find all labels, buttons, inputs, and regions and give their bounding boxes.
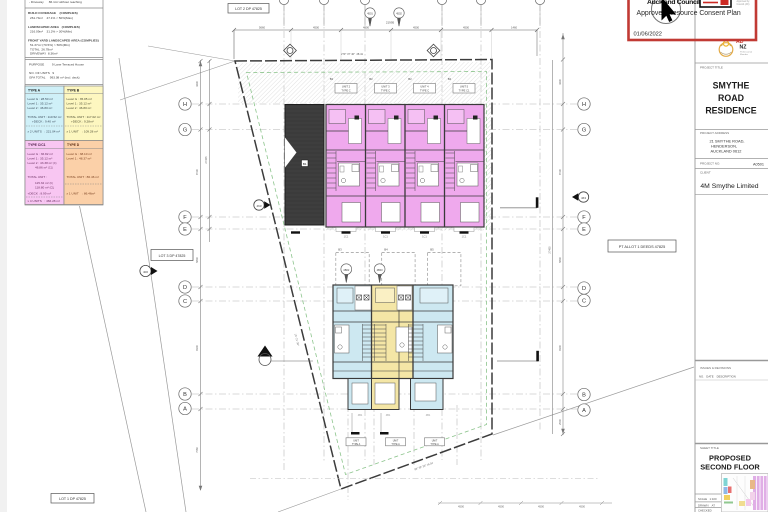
svg-text:TOTAL UNIT :: TOTAL UNIT : (28, 175, 47, 179)
svg-text:273° 37' 40" 28.41: 273° 37' 40" 28.41 (341, 52, 363, 56)
svg-text:4B1: 4B1 (426, 413, 431, 417)
svg-text:PURPOSE 9 Lane Terrace: PURPOSE 9 Lane Terraced House (29, 63, 84, 67)
svg-text:1C1: 1C1 (422, 235, 427, 239)
svg-text:x 2 UNITS : 221.04 m²: x 2 UNITS : 221.04 m² (28, 130, 61, 134)
svg-text:TOTAL UNIT : 117.02 m²: TOTAL UNIT : 117.02 m² (67, 115, 101, 119)
svg-text:4500: 4500 (458, 505, 464, 509)
svg-text:SCALE 1:100: SCALE 1:100 (698, 497, 717, 501)
svg-text:261.74m² 47.1% < 50%(Max): 261.74m² 47.1% < 50%(Max) (30, 16, 73, 20)
svg-text:E: E (183, 227, 187, 233)
svg-text:B: B (582, 393, 586, 399)
svg-text:TYPE C: TYPE C (381, 89, 390, 93)
svg-text:x 1 UNIT : 86.46m²: x 1 UNIT : 86.46m² (67, 192, 96, 196)
svg-text:4500: 4500 (463, 26, 469, 30)
svg-text:DRAWN AT: DRAWN AT (698, 503, 715, 507)
svg-text:463: 463 (256, 204, 261, 208)
svg-text:Level 1 : 35.12 m²: Level 1 : 35.12 m² (28, 157, 53, 161)
svg-text:Approved Resource Consent Plan: Approved Resource Consent Plan (637, 10, 741, 17)
svg-text:4502: 4502 (396, 12, 402, 16)
svg-text:TYPE C1: TYPE C1 (459, 89, 470, 93)
svg-text:PROJECT NO.: PROJECT NO. (700, 162, 720, 166)
svg-text:1C1: 1C1 (344, 235, 349, 239)
svg-text:5840: 5840 (195, 257, 199, 263)
svg-text:x 4 UNITS : 466.28 m²: x 4 UNITS : 466.28 m² (28, 199, 61, 203)
svg-text:F: F (183, 215, 187, 221)
svg-text:Level 2 : 43.38 m² (C): Level 2 : 43.38 m² (C) (28, 161, 57, 165)
svg-text:SHEET TITLE: SHEET TITLE (700, 446, 719, 450)
svg-text:DRIVEWAY 8.36m²: DRIVEWAY 8.36m² (30, 52, 58, 56)
svg-text:PROPOSED: PROPOSED (709, 454, 752, 463)
svg-text:B4: B4 (384, 248, 388, 252)
svg-text:01/06/2022: 01/06/2022 (634, 32, 662, 38)
svg-text:RESIDENCE: RESIDENCE (705, 106, 756, 116)
svg-text:NO. OF UNITS 9: NO. OF UNITS 9 (29, 71, 54, 75)
svg-text:AUCKLAND 0612: AUCKLAND 0612 (711, 149, 742, 154)
svg-text:CHECKED: CHECKED (698, 509, 712, 513)
svg-text:x 1 UNIT : 109.28 m²: x 1 UNIT : 109.28 m² (67, 130, 98, 134)
svg-text:4B1: 4B1 (386, 413, 391, 417)
svg-text:5840: 5840 (558, 257, 562, 263)
svg-text:UNIT 3: UNIT 3 (381, 85, 390, 89)
svg-text:4501: 4501 (367, 12, 373, 16)
svg-text:SMYTHE: SMYTHE (713, 81, 750, 91)
svg-text:PROJECT TITLE: PROJECT TITLE (700, 66, 723, 70)
svg-text:BUILD COVERAGE (COMPLIES): BUILD COVERAGE (COMPLIES) (28, 11, 78, 15)
svg-text:4B1: 4B1 (358, 413, 363, 417)
svg-text:NO. DATE DESCRIPTION: NO. DATE DESCRIPTION (699, 375, 736, 379)
svg-text:2500: 2500 (558, 419, 562, 425)
svg-text:118.80 m² (C1): 118.80 m² (C1) (35, 186, 54, 190)
svg-text:ROAD: ROAD (718, 93, 744, 103)
svg-text:TOTAL UNIT : 110.52 m²: TOTAL UNIT : 110.52 m² (28, 115, 62, 119)
svg-text:TYPE A: TYPE A (391, 443, 400, 446)
svg-text:B5: B5 (430, 248, 434, 252)
svg-text:46.86 m² (C1): 46.86 m² (C1) (35, 166, 53, 170)
svg-text:9300: 9300 (195, 345, 199, 351)
svg-text:Level 1 : 35.12 m²: Level 1 : 35.12 m² (67, 102, 92, 106)
svg-text:Approved by: Approved by (737, 0, 751, 3)
svg-text:Level 2 : 46.80 m²: Level 2 : 46.80 m² (67, 106, 92, 110)
svg-text:D: D (582, 286, 586, 292)
svg-text:1C1: 1C1 (383, 235, 388, 239)
svg-text:216.09m² 31.2% > 30%(Min): 216.09m² 31.2% > 30%(Min) (30, 29, 72, 33)
svg-text:TYPE C: TYPE C (341, 89, 350, 93)
svg-text:A0501: A0501 (753, 163, 764, 167)
svg-text:463: 463 (581, 196, 586, 200)
svg-text:400: 400 (143, 270, 148, 274)
svg-text:UNIT 2: UNIT 2 (342, 85, 351, 89)
svg-text:E: E (582, 227, 586, 233)
svg-text:LOT 2 DP 47825: LOT 2 DP 47825 (235, 7, 262, 11)
svg-text:A: A (582, 408, 586, 414)
svg-text:Level G : 28.50 m²: Level G : 28.50 m² (28, 97, 53, 101)
svg-text:21995: 21995 (386, 21, 395, 25)
svg-text:SECOND FLOOR: SECOND FLOOR (700, 463, 760, 472)
svg-text:B2: B2 (408, 77, 412, 81)
svg-text:4500: 4500 (413, 26, 419, 30)
svg-text:TYPE D: TYPE D (67, 143, 80, 147)
svg-text:4B03: 4B03 (377, 268, 384, 272)
svg-text:+DECK : 9.40 m²: +DECK : 9.40 m² (32, 120, 55, 124)
svg-text:Level G : 35.05 m²: Level G : 35.05 m² (67, 97, 92, 101)
svg-text:1C1: 1C1 (462, 235, 467, 239)
svg-text:8730: 8730 (558, 169, 562, 175)
svg-text:NZ: NZ (740, 45, 748, 51)
svg-text:TYPE C/C1: TYPE C/C1 (28, 143, 46, 147)
svg-text:TYPE A: TYPE A (28, 89, 41, 93)
svg-text:Level 1 : 35.12 m²: Level 1 : 35.12 m² (28, 102, 53, 106)
svg-text:G: G (582, 128, 586, 134)
svg-text:F: F (582, 215, 586, 221)
svg-text:G: G (183, 128, 187, 134)
svg-text:LOT 3 DP 47825: LOT 3 DP 47825 (159, 254, 186, 258)
svg-text:C: C (582, 299, 586, 305)
svg-text:4500: 4500 (498, 505, 504, 509)
svg-text:B3: B3 (338, 248, 342, 252)
svg-text:4B02: 4B02 (343, 268, 350, 272)
svg-text:B2: B2 (369, 77, 373, 81)
svg-text:+DECK : 9.28m²: +DECK : 9.28m² (71, 120, 94, 124)
svg-text:4430: 4430 (195, 81, 199, 87)
svg-text:Level 1 : 48.37 m²: Level 1 : 48.37 m² (67, 157, 92, 161)
svg-text:Auckland Council: Auckland Council (647, 0, 700, 6)
svg-text:CLIENT: CLIENT (700, 171, 711, 175)
svg-text:4430: 4430 (558, 79, 562, 85)
svg-text:PROJECT ADDRESS: PROJECT ADDRESS (700, 131, 729, 135)
svg-text:TYPE C: TYPE C (420, 89, 429, 93)
svg-text:LOT 1 DP 47825: LOT 1 DP 47825 (59, 497, 86, 501)
svg-text:4500: 4500 (363, 26, 369, 30)
svg-text:PT ALLOT 1 DEEDS 47825: PT ALLOT 1 DEEDS 47825 (619, 245, 666, 249)
svg-text:4M Smythe Limited: 4M Smythe Limited (700, 183, 758, 190)
svg-text:7560: 7560 (195, 447, 199, 453)
svg-text:ISSUES & REVISIONS: ISSUES & REVISIONS (700, 366, 731, 370)
svg-text:TYPE A: TYPE A (352, 443, 361, 446)
svg-text:Professional: Professional (740, 51, 753, 54)
svg-text:27405: 27405 (548, 246, 552, 254)
svg-text:H: H (582, 102, 586, 108)
svg-text:4500: 4500 (579, 505, 585, 509)
svg-text:Member: Member (740, 53, 748, 56)
svg-text:GFA TOTAL 993.08 m² (incl.: GFA TOTAL 993.08 m² (incl. deck) (29, 76, 80, 80)
svg-text:27405: 27405 (204, 156, 208, 164)
svg-text:TYPE A: TYPE A (430, 443, 439, 446)
svg-text:+DECK : 8.99 m²: +DECK : 8.99 m² (28, 192, 51, 196)
svg-text:B2: B2 (448, 77, 452, 81)
svg-text:9300: 9300 (558, 345, 562, 351)
svg-text:5660: 5660 (259, 26, 265, 30)
svg-text:TOTAL UNIT : 86.46 m²: TOTAL UNIT : 86.46 m² (67, 175, 99, 179)
svg-text:UNIT 4: UNIT 4 (420, 85, 429, 89)
svg-text:Council (AK): Council (AK) (737, 3, 750, 6)
svg-text:LANDSCAPED AREA (COMPLIES): LANDSCAPED AREA (COMPLIES) (28, 25, 80, 29)
svg-text:4500: 4500 (313, 26, 319, 30)
svg-text:115.32 m² (C): 115.32 m² (C) (35, 181, 53, 185)
svg-text:1460: 1460 (511, 26, 517, 30)
svg-text:4500: 4500 (538, 505, 544, 509)
svg-text:TYPE B: TYPE B (67, 89, 80, 93)
svg-text:C: C (183, 299, 187, 305)
svg-text:FRONT YARD LANDSCAPED AREA (CO: FRONT YARD LANDSCAPED AREA (COMPLIES) (28, 38, 99, 42)
svg-text:H: H (183, 102, 187, 108)
svg-text:Level 2 : 46.80 m²: Level 2 : 46.80 m² (28, 106, 53, 110)
svg-text:Level G : 38.10 m²: Level G : 38.10 m² (67, 152, 92, 156)
svg-text:D: D (183, 285, 187, 291)
svg-text:A: A (183, 407, 187, 413)
svg-text:B: B (183, 392, 187, 398)
svg-text:B2: B2 (330, 77, 334, 81)
svg-text:B1: B1 (303, 162, 307, 166)
svg-text:8730: 8730 (195, 169, 199, 175)
svg-text:- Driveway 86.1m² without: - Driveway 86.1m² without reaching (29, 0, 82, 4)
svg-text:UNIT 5: UNIT 5 (460, 85, 469, 89)
svg-text:Level G : 36.82 m²: Level G : 36.82 m² (28, 152, 53, 156)
